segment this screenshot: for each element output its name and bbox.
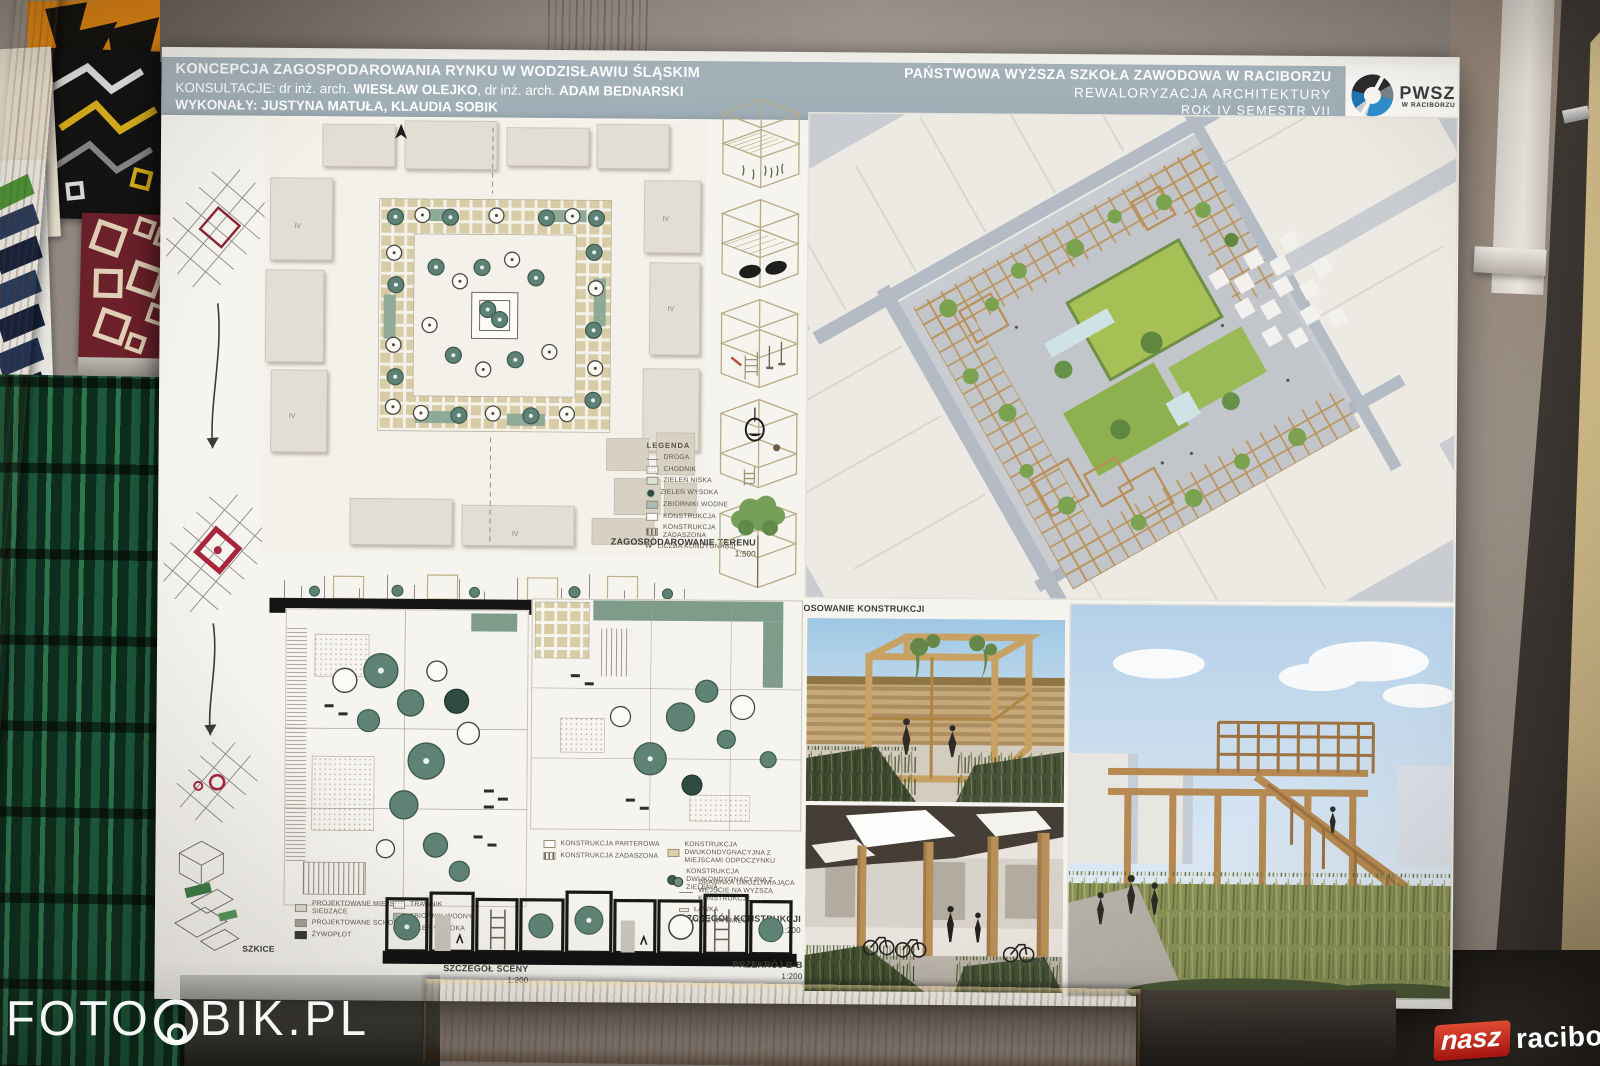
svg-text:IV: IV — [289, 413, 296, 420]
fotobik-watermark: FOTOBIK.PL — [6, 989, 370, 1047]
construction-cubes-drawing — [709, 95, 809, 596]
water-swatch — [646, 501, 658, 509]
presentation-board: KONCEPCJA ZAGOSPODAROWANIA RYNKU W WODZI… — [154, 47, 1459, 1009]
sketches-column-drawing — [161, 123, 268, 964]
structure-swatch — [646, 512, 658, 520]
pwsz-logo-icon — [1351, 74, 1393, 116]
header-right: PAŃSTWOWA WYŻSZA SZKOŁA ZAWODOWA W RACIB… — [904, 65, 1332, 120]
fotobik-ring-inner — [167, 1023, 187, 1044]
raciborz-text: raciborz.pl — [1515, 1018, 1600, 1055]
school-name: PAŃSTWOWA WYŻSZA SZKOŁA ZAWODOWA W RACIB… — [904, 65, 1332, 86]
render-canopy-bikes — [804, 805, 1063, 993]
roofed-swatch — [543, 851, 555, 859]
easel-tray — [423, 979, 1140, 1066]
section-bb-drawing — [383, 875, 804, 970]
stairs-swatch — [295, 919, 307, 927]
pavement-swatch — [646, 465, 658, 473]
render-deck-ramp — [1066, 603, 1454, 1000]
fotobik-text-right: BIK.PL — [200, 989, 370, 1047]
construction-detail-plan — [530, 598, 804, 832]
right-floor-shadow — [1136, 990, 1396, 1066]
scene-detail-plan — [283, 608, 529, 908]
naszraciborz-watermark: nasz raciborz.pl — [1433, 1016, 1600, 1060]
road-swatch — [647, 454, 659, 462]
svg-text:IV: IV — [294, 223, 301, 230]
aerial-render — [804, 112, 1458, 603]
ground-structure-swatch — [543, 840, 555, 848]
two-storey-rest-swatch — [667, 849, 679, 857]
section-bb-label: PRZEKRÓJ B-B1:200 — [714, 959, 802, 982]
fotobik-ring-icon — [154, 999, 198, 1045]
high-green-swatch — [646, 488, 655, 497]
nasz-badge: nasz — [1433, 1020, 1510, 1061]
logo-subtitle: W RACIBORZU — [1399, 101, 1455, 108]
site-plan-drawing: IV IV IV IV IV — [262, 118, 707, 555]
construction-legend: KONSTRUKCJA PARTEROWA KONSTRUKCJA ZADASZ… — [543, 840, 661, 864]
fotobik-text-left: FOTO — [6, 989, 152, 1047]
seats-swatch — [295, 904, 307, 912]
svg-text:IV: IV — [662, 216, 669, 223]
low-green-swatch — [646, 477, 658, 485]
svg-text:IV: IV — [668, 306, 675, 313]
photo-scene: KONCEPCJA ZAGOSPODAROWANIA RYNKU W WODZI… — [0, 0, 1600, 1066]
hedge-swatch — [295, 931, 307, 939]
pwsz-logo-text: PWSZ W RACIBORZU — [1399, 83, 1455, 108]
logo-name: PWSZ — [1399, 83, 1455, 101]
roofed-structure-swatch — [646, 528, 658, 536]
window-sill — [1473, 246, 1546, 276]
render-cube-playground — [806, 618, 1065, 803]
sketches-label: SZKICE — [215, 943, 275, 955]
header-left: KONCEPCJA ZAGOSPODAROWANIA RYNKU W WODZI… — [175, 60, 700, 117]
svg-text:IV: IV — [512, 531, 519, 538]
